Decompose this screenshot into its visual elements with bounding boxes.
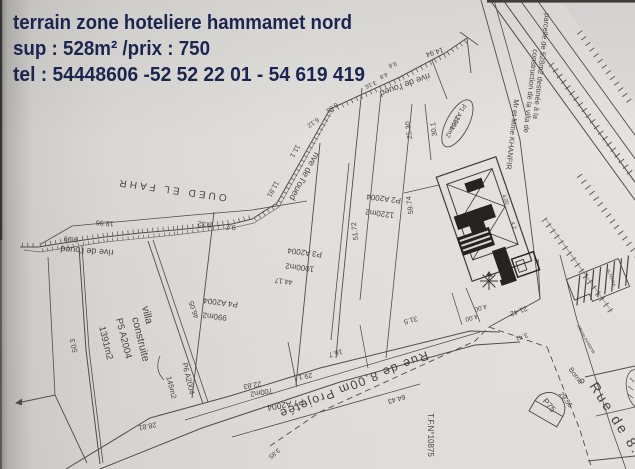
svg-text:terrain zone hoteliere hammame: terrain zone hoteliere hammamet nord: [13, 12, 352, 34]
svg-text:8.32: 8.32: [197, 219, 212, 229]
svg-text:9.99: 9.99: [63, 234, 78, 244]
svg-text:sup : 528m² /prix : 750: sup : 528m² /prix : 750: [13, 38, 210, 60]
svg-text:tel : 54448606 -52 52 22 01 -: tel : 54448606 -52 52 22 01 - 54 619 419: [13, 64, 365, 86]
svg-text:18.96: 18.96: [95, 218, 114, 229]
svg-text:T.F.N°10875: T.F.N°10875: [426, 413, 435, 457]
svg-text:9,7: 9,7: [225, 223, 236, 233]
